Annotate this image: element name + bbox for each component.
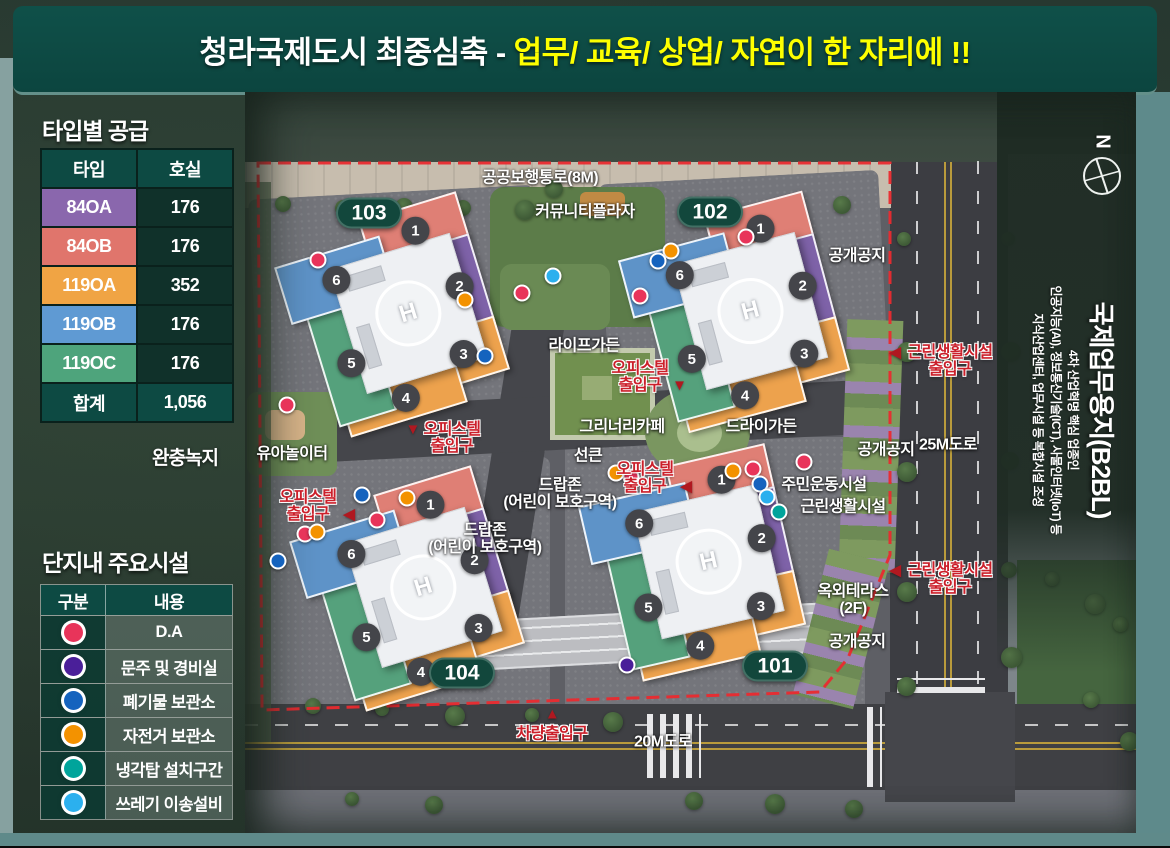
map-label-line: 옥외테라스 <box>817 583 888 600</box>
map-label-line: 유아놀이터 <box>256 445 327 462</box>
map-label-line: (어린이 보호구역) <box>428 539 541 556</box>
supply-table-title: 타입별 공급 <box>42 112 148 146</box>
entrance-arrow-icon: ◀ <box>889 345 900 361</box>
supply-rooms-cell: 176 <box>138 189 232 226</box>
facility-dot-icon <box>64 623 83 642</box>
legend-name-cell: D.A <box>106 616 232 649</box>
legend-dot-cell <box>41 650 106 683</box>
legend-name-cell: 자전거 보관소 <box>106 718 232 751</box>
legend-header-cell: 내용 <box>106 585 232 615</box>
wing-number-chip: 5 <box>352 623 380 651</box>
legend-dot-cell <box>41 786 106 819</box>
helipad-icon: H <box>382 546 464 628</box>
facilities-legend: 구분내용D.A문주 및 경비실폐기물 보관소자전거 보관소냉각탑 설치구간쓰레기… <box>40 584 233 820</box>
entrance-arrow-icon: ◀ <box>680 479 691 495</box>
legend-dot-cell <box>41 718 106 751</box>
map-label: 오피스텔출입구▼ <box>424 421 481 455</box>
map-facility-dot-orange <box>399 490 416 507</box>
supply-type-cell: 119OC <box>42 345 136 382</box>
supply-header-cell: 타입 <box>42 150 136 187</box>
map-label: 그리너리카페 <box>579 418 664 435</box>
map-facility-dot-blue <box>477 348 494 365</box>
supply-rooms-cell: 176 <box>138 228 232 265</box>
map-label-line: 근린생활시설 <box>907 344 992 361</box>
map-facility-dot-purple <box>619 657 636 674</box>
supply-table: 타입호실84OA17684OB176119OA352119OB176119OC1… <box>40 148 234 423</box>
legend-dot-cell <box>41 752 106 785</box>
map-label: 드라이가든 <box>725 418 796 435</box>
north-label: N <box>1091 120 1114 164</box>
legend-row: 쓰레기 이송설비 <box>41 786 232 819</box>
map-label-line: 출입구 <box>424 438 481 455</box>
helipad-icon: H <box>669 522 748 601</box>
wing-number-chip: 4 <box>731 381 759 409</box>
map-label: 오피스텔출입구◀ <box>617 461 674 495</box>
wing-number-chip: 1 <box>416 491 444 519</box>
map-label-line: 드라이가든 <box>725 418 796 435</box>
legend-dot-cell <box>41 616 106 649</box>
map-label: 근린생활시설출입구◀ <box>907 562 992 596</box>
legend-row: 문주 및 경비실 <box>41 650 232 684</box>
legend-name-cell: 문주 및 경비실 <box>106 650 232 683</box>
legend-row: 폐기물 보관소 <box>41 684 232 718</box>
helipad-icon: H <box>367 272 449 354</box>
map-facility-dot-orange <box>309 524 326 541</box>
wing-number-chip: 2 <box>748 524 776 552</box>
supply-rooms-cell: 176 <box>138 345 232 382</box>
supply-row: 84OA176 <box>42 189 232 226</box>
legend-header-cell: 구분 <box>41 585 106 615</box>
wing-number-chip: 6 <box>337 540 365 568</box>
entrance-arrow-icon: ◀ <box>343 507 354 523</box>
wing-number-chip: 3 <box>465 614 493 642</box>
map-label-line: 오피스텔 <box>424 421 481 438</box>
supply-row: 119OC176 <box>42 345 232 382</box>
legend-row: 냉각탑 설치구간 <box>41 752 232 786</box>
wing-number-chip: 4 <box>686 632 714 660</box>
block-badge-101: 101 <box>742 651 808 682</box>
supply-row: 84OB176 <box>42 228 232 265</box>
map-label: 드랍존(어린이 보호구역) <box>503 477 616 511</box>
map-label: 차량출입구▲ <box>516 725 587 742</box>
wing-number-chip: 1 <box>401 217 429 245</box>
map-label: 오피스텔출입구◀ <box>280 489 337 523</box>
frame-left-strip <box>0 58 13 848</box>
map-label: 라이프가든 <box>548 337 619 354</box>
map-facility-dot-orange <box>725 463 742 480</box>
district-title: 국제업무용지(B2BL) <box>1084 200 1121 620</box>
supply-row: 119OB176 <box>42 306 232 343</box>
entrance-arrow-icon: ▼ <box>672 378 686 394</box>
map-label-line: 근린생활시설 <box>907 562 992 579</box>
map-label: 근린생활시설출입구◀ <box>907 344 992 378</box>
roof-vent <box>648 512 689 536</box>
map-facility-dot-red <box>738 229 755 246</box>
legend-name-cell: 냉각탑 설치구간 <box>106 752 232 785</box>
wing-number-chip: 4 <box>392 384 420 412</box>
wing-number-chip: 6 <box>625 509 653 537</box>
map-label-line: 오피스텔 <box>612 360 669 377</box>
map-label-line: 공공보행통로(8M) <box>482 169 598 186</box>
map-facility-dot-sky <box>545 268 562 285</box>
map-label-line: 오피스텔 <box>280 489 337 506</box>
map-label: 주민운동시설 <box>781 476 866 493</box>
district-line: 4차 산업혁명 핵심 업종인 <box>1064 200 1081 620</box>
map-label-line: 커뮤니티플라자 <box>535 203 635 220</box>
supply-type-cell: 119OA <box>42 267 136 304</box>
block-badge-102: 102 <box>677 197 743 228</box>
map-label: 공개공지 <box>829 633 886 650</box>
supply-type-cell: 84OB <box>42 228 136 265</box>
map-facility-dot-red <box>369 512 386 529</box>
map-label-line: 공개공지 <box>829 247 886 264</box>
legend-dot-cell <box>41 684 106 717</box>
wing-number-chip: 5 <box>634 593 662 621</box>
entrance-arrow-icon: ◀ <box>889 563 900 579</box>
map-label: 20M도로 <box>634 733 692 750</box>
site-plan-map: H123456H123456H123456H123456 10310210410… <box>245 92 1136 833</box>
header-banner: 청라국제도시 최중심축 - 업무/ 교육/ 상업/ 자연이 한 자리에 !! <box>13 6 1157 95</box>
buffer-green-label: 완충녹지 <box>152 443 218 470</box>
map-facility-dot-red <box>279 397 296 414</box>
supply-row: 119OA352 <box>42 267 232 304</box>
facility-dot-icon <box>64 657 83 676</box>
facilities-legend-title: 단지내 주요시설 <box>42 544 189 578</box>
supply-rooms-cell: 352 <box>138 267 232 304</box>
supply-total-label: 합계 <box>42 384 136 421</box>
wing-number-chip: 6 <box>322 266 350 294</box>
map-label: 선큰 <box>574 447 602 464</box>
district-vertical-text: 국제업무용지(B2BL) 4차 산업혁명 핵심 업종인 인공지능(AI), 정보… <box>1035 200 1121 620</box>
map-facility-dot-blue <box>650 253 667 270</box>
facility-dot-icon <box>64 759 83 778</box>
roof-vent <box>360 539 401 565</box>
wing-number-chip: 5 <box>678 345 706 373</box>
helipad-icon: H <box>710 271 791 352</box>
map-label: 공개공지 <box>858 441 915 458</box>
facility-dot-icon <box>64 691 83 710</box>
wing-number-chip: 3 <box>747 592 775 620</box>
map-label: 오피스텔출입구▼ <box>612 360 669 394</box>
supply-type-cell: 119OB <box>42 306 136 343</box>
map-facility-dot-sky <box>759 489 776 506</box>
roof-vent <box>688 262 729 287</box>
map-facility-dot-blue <box>270 553 287 570</box>
map-facility-dot-red <box>514 285 531 302</box>
wing-number-chip: 5 <box>337 349 365 377</box>
map-facility-dot-red <box>310 252 327 269</box>
map-label: 25M도로 <box>919 436 977 453</box>
wing-number-chip: 3 <box>790 340 818 368</box>
legend-row: D.A <box>41 616 232 650</box>
map-label-line: 선큰 <box>574 447 602 464</box>
compass: N <box>1080 130 1124 206</box>
map-label-line: 출입구 <box>907 361 992 378</box>
legend-name-cell: 폐기물 보관소 <box>106 684 232 717</box>
poster: 청라국제도시 최중심축 - 업무/ 교육/ 상업/ 자연이 한 자리에 !! <box>0 0 1170 848</box>
banner-title-accent: 업무/ 교육/ 상업/ 자연이 한 자리에 !! <box>514 27 971 72</box>
map-label-line: 그리너리카페 <box>579 418 664 435</box>
wing-number-chip: 2 <box>789 272 817 300</box>
supply-type-cell: 84OA <box>42 189 136 226</box>
map-label: 공개공지 <box>829 247 886 264</box>
block-badge-103: 103 <box>336 198 402 229</box>
legend-name-cell: 쓰레기 이송설비 <box>106 786 232 819</box>
map-label: 근린생활시설 <box>800 498 885 515</box>
district-line: 지식산업센터, 업무시설 등 복합시설 조성 <box>1029 200 1046 620</box>
map-label-line: (2F) <box>817 600 888 617</box>
map-label-line: 오피스텔 <box>617 461 674 478</box>
map-label-line: 드랍존 <box>428 522 541 539</box>
supply-rooms-cell: 176 <box>138 306 232 343</box>
facility-dot-icon <box>64 725 83 744</box>
map-label: 공공보행통로(8M) <box>482 169 598 186</box>
legend-row: 자전거 보관소 <box>41 718 232 752</box>
roof-vent <box>345 265 386 291</box>
facility-dot-icon <box>64 793 83 812</box>
map-facility-dot-red <box>632 288 649 305</box>
map-label-line: 공개공지 <box>829 633 886 650</box>
map-label-line: 25M도로 <box>919 436 977 453</box>
map-facility-dot-teal <box>771 504 788 521</box>
legend-header-row: 구분내용 <box>41 585 232 616</box>
supply-total-value: 1,056 <box>138 384 232 421</box>
wing-number-chip: 6 <box>666 261 694 289</box>
supply-header-cell: 호실 <box>138 150 232 187</box>
map-label-line: 출입구 <box>907 579 992 596</box>
map-facility-dot-red <box>796 454 813 471</box>
map-label-line: 출입구 <box>612 377 669 394</box>
map-label: 옥외테라스(2F) <box>817 583 888 617</box>
entrance-arrow-icon: ▲ <box>545 706 559 722</box>
frame-bottom-strip <box>0 833 1170 846</box>
supply-total-row: 합계1,056 <box>42 384 232 421</box>
wing-number-chip: 3 <box>450 340 478 368</box>
map-label-line: 드랍존 <box>503 477 616 494</box>
map-label-line: 주민운동시설 <box>781 476 866 493</box>
block-badge-104: 104 <box>429 658 495 689</box>
map-label-line: (어린이 보호구역) <box>503 494 616 511</box>
map-label-line: 차량출입구 <box>516 725 587 742</box>
map-label-line: 출입구 <box>280 506 337 523</box>
map-label: 드랍존(어린이 보호구역) <box>428 522 541 556</box>
supply-header-row: 타입호실 <box>42 150 232 187</box>
map-facility-dot-orange <box>457 292 474 309</box>
map-label-line: 근린생활시설 <box>800 498 885 515</box>
frame-right-strip <box>1136 92 1170 848</box>
map-label: 커뮤니티플라자 <box>535 203 635 220</box>
banner-title-main: 청라국제도시 최중심축 - <box>199 27 505 72</box>
map-label-line: 라이프가든 <box>548 337 619 354</box>
district-line: 인공지능(AI), 정보통신기술(ICT), 사물인터넷(IoT) 등 <box>1046 200 1063 620</box>
map-label-line: 공개공지 <box>858 441 915 458</box>
map-label-line: 출입구 <box>617 478 674 495</box>
map-facility-dot-blue <box>354 487 371 504</box>
map-label-line: 20M도로 <box>634 733 692 750</box>
entrance-arrow-icon: ▼ <box>406 422 420 438</box>
map-label: 유아놀이터 <box>256 445 327 462</box>
